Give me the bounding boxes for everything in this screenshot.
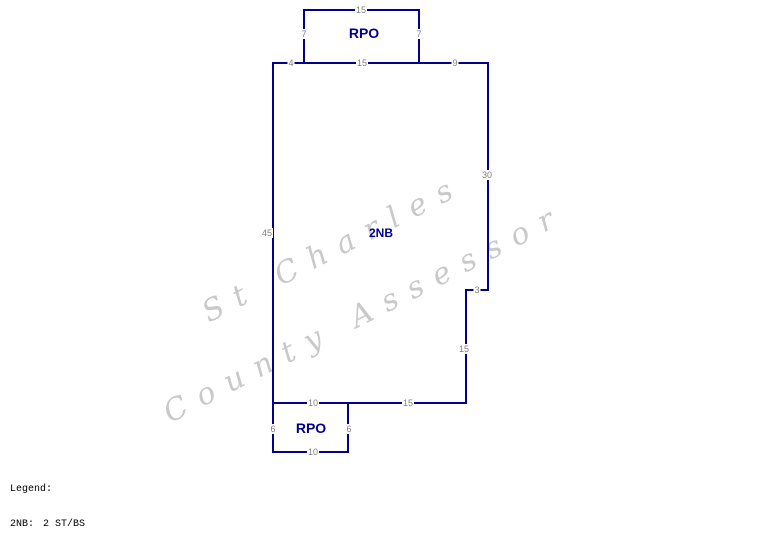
bottom-porch-label: RPO <box>296 420 326 436</box>
dim-main-right-upper-height: 30 <box>481 170 493 180</box>
legend-row-2nb: 2NB: 2 ST/BS <box>10 519 145 531</box>
dim-top-porch-right-height: 7 <box>415 29 422 39</box>
dim-step-width: 3 <box>473 285 480 295</box>
dim-main-top-right: 9 <box>451 58 458 68</box>
dim-main-bottom-right: 15 <box>402 398 414 408</box>
legend-code: 2NB: <box>10 519 43 531</box>
watermark-line1: St Charles <box>117 116 548 383</box>
dim-main-top-left: 4 <box>287 58 294 68</box>
legend-title: Legend: <box>10 484 145 496</box>
dim-main-top-center: 15 <box>356 58 368 68</box>
dim-main-left-height: 45 <box>261 228 273 238</box>
dim-bottom-porch-right-height: 6 <box>345 424 352 434</box>
watermark: St Charles County Assessor <box>117 116 580 447</box>
main-bottom-edge <box>272 402 467 404</box>
main-area-label: 2NB <box>369 226 393 240</box>
dim-bottom-porch-left-height: 6 <box>269 424 276 434</box>
dim-top-porch-width: 15 <box>355 5 367 15</box>
legend: Legend: 2NB: 2 ST/BS BSA: BASEMENT AREA … <box>10 461 145 535</box>
top-porch-label: RPO <box>349 25 379 41</box>
dim-top-porch-left-height: 7 <box>300 29 307 39</box>
dim-main-right-lower-height: 15 <box>458 344 470 354</box>
legend-desc: 2 ST/BS <box>43 519 85 531</box>
dim-bottom-porch-width: 10 <box>307 447 319 457</box>
assessor-sketch-page: St Charles County Assessor 15 7 7 4 15 9… <box>0 0 762 535</box>
dim-main-bottom-left: 10 <box>307 398 319 408</box>
watermark-line2: County Assessor <box>150 180 581 447</box>
